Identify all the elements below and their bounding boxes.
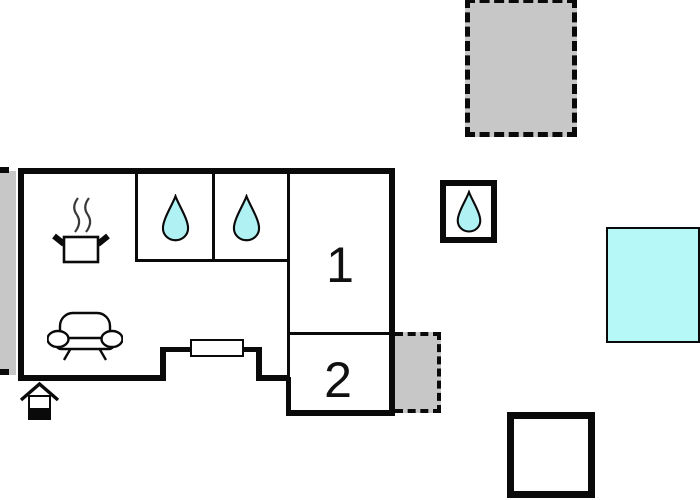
partition-room1-room2 [290,332,389,335]
floorplan-canvas: 1 2 [0,0,700,500]
room-label-2: 2 [289,355,387,405]
swimming-pool [606,227,700,343]
terrace-strip [0,171,16,375]
water-drop-icon [161,194,190,243]
outbuilding-box [507,412,595,498]
annex-dashed-side [395,332,441,413]
terrace-dash-bottom [0,369,9,375]
wall-top [18,168,395,174]
wall-bottom-mid [256,375,290,381]
wall-left [18,168,24,381]
partition-cell-divider [212,172,215,262]
room-label-1: 1 [291,240,389,290]
water-drop-icon [232,194,261,243]
cooking-pot-icon [50,192,112,266]
terrace-dash-top [0,167,9,173]
house-entrance-icon [19,381,59,421]
window-symbol [190,339,244,357]
partition-cells-bottom [135,259,290,262]
water-drop-icon [456,190,482,234]
annex-dashed-top-right [465,0,577,137]
wall-room2-bottom [286,410,395,416]
wall-step-left [160,347,166,381]
shower-outbuilding [440,180,497,243]
partition-cell1-left [135,172,138,262]
sofa-icon [47,310,123,362]
partition-hall-rooms [287,172,290,377]
